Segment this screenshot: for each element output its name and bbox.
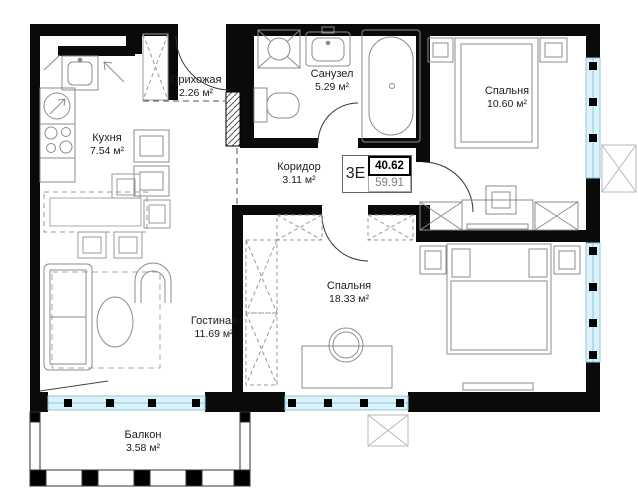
hallway-wardrobe [143,34,168,100]
room-name: Гостиная [191,314,237,328]
room-label-bathroom: Санузел 5.29 м² [311,67,354,95]
stove-burner [47,144,56,153]
stove-burner [45,127,57,139]
bed-large [447,244,551,354]
kitchen-counter [40,88,75,182]
wardrobe [535,202,578,230]
room-area: 18.33 м² [327,293,371,307]
toilet [254,88,299,122]
room-area: 2.26 м² [171,87,222,101]
room-name: Балкон [125,428,162,442]
zone-boundaries [143,101,237,205]
bed-bench [463,383,533,390]
room-label-bedroom-large: Спальня 18.33 м² [327,279,371,307]
pillow [529,249,547,277]
apartment-living-area: 40.62 [368,156,411,176]
room-label-balcony: Балкон 3.58 м² [125,428,162,456]
window-bedroom-large [586,243,600,362]
kitchen-sink-unit [44,55,98,90]
room-name: Кухня [90,131,124,145]
coffee-table [97,297,133,347]
apartment-info-box: 3Е 40.62 59.91 [342,155,412,193]
desk-chair [329,328,363,362]
sofa [44,264,92,370]
room-name: Прихожая [171,73,222,87]
room-label-kitchen: Кухня 7.54 м² [90,131,124,159]
ac-unit [602,145,636,192]
nightstand [420,246,446,274]
apartment-type-label: 3Е [343,156,368,192]
wardrobe [368,215,413,240]
room-name: Коридор [277,160,320,174]
vent-arrow-icon [104,62,124,82]
room-area: 5.29 м² [311,81,354,95]
fridge [134,130,169,162]
room-label-living-room: Гостиная 11.69 м² [191,314,237,342]
apartment-total-area: 59.91 [368,176,411,193]
vent-shaft [226,92,240,146]
room-name: Санузел [311,67,354,81]
room-label-corridor: Коридор 3.11 м² [277,160,320,188]
floor-plan: Прихожая 2.26 м² Кухня 7.54 м² Санузел 5… [0,0,638,500]
room-area: 7.54 м² [90,145,124,159]
wardrobe [246,313,277,385]
room-area: 3.11 м² [277,174,320,188]
kitchen-cabinet [134,166,169,196]
bedroom-small-door-arc [423,162,473,212]
dining-chairs [78,174,170,258]
wardrobe [246,240,277,313]
bedroom-small-furniture [420,38,578,230]
room-area: 11.69 м² [191,328,237,342]
nightstand [540,38,567,62]
wardrobe [277,215,322,240]
room-area: 10.60 м² [485,98,529,112]
room-label-bedroom-small: Спальня 10.60 м² [485,84,529,112]
window-living-room [40,381,205,410]
room-name: Спальня [485,84,529,98]
room-area: 3.58 м² [125,442,162,456]
pillow [452,249,470,277]
room-name: Спальня [327,279,371,293]
armchair [135,263,171,303]
desk [302,328,392,388]
living-room-furniture [44,263,171,370]
desk-chair [333,332,359,358]
window-bedroom-large-bottom [285,396,408,410]
window-opening-line [40,381,108,391]
room-label-hallway: Прихожая 2.26 м² [171,73,222,101]
window-bedroom-small [586,58,600,178]
bathroom-door-arc [318,103,358,143]
ac-unit [368,415,408,446]
stove-burner [60,141,72,153]
nightstand [554,246,580,274]
nightstand [428,38,453,62]
rug-zone [52,272,160,368]
stove-burner [62,128,71,137]
bedroom-large-door-arc [322,215,368,261]
bathtub [362,30,420,142]
